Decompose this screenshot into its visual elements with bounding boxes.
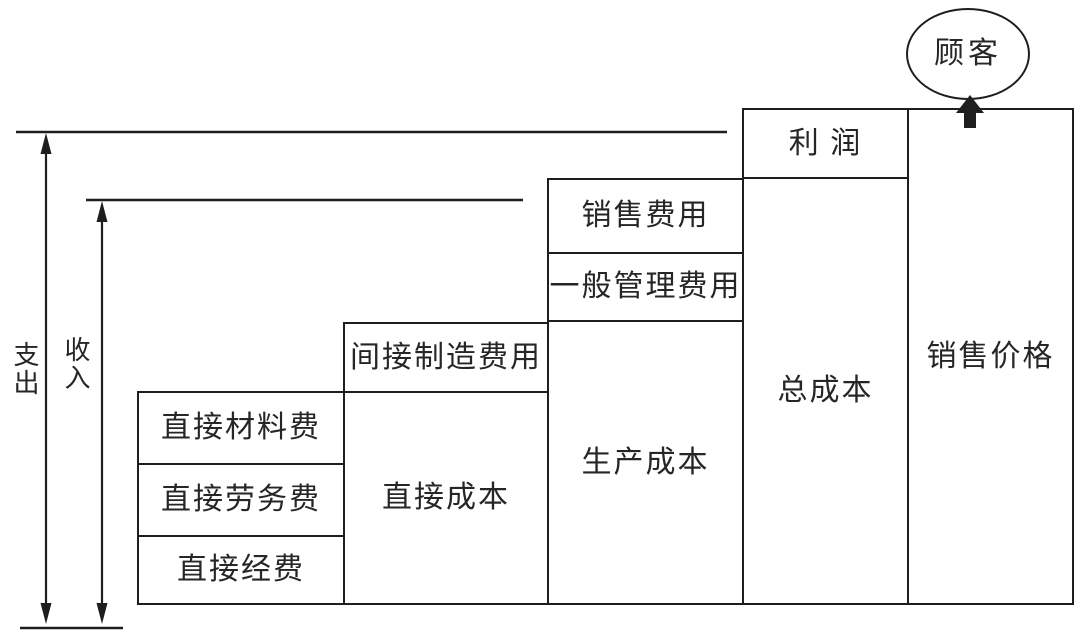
box-profit: 利 润 bbox=[742, 108, 909, 179]
expenditure-range-arrow bbox=[41, 133, 52, 624]
box-direct-expense-label: 直接经费 bbox=[177, 555, 305, 585]
box-general-admin-expense: 一般管理费用 bbox=[547, 252, 744, 322]
box-direct-material: 直接材料费 bbox=[137, 391, 345, 465]
box-selling-expense: 销售费用 bbox=[547, 178, 744, 254]
box-production-cost: 生产成本 bbox=[547, 320, 744, 605]
box-general-admin-expense-label: 一般管理费用 bbox=[550, 272, 742, 302]
box-direct-material-label: 直接材料费 bbox=[161, 413, 321, 443]
box-total-cost: 总成本 bbox=[742, 177, 909, 605]
expenditure-label: 支出 bbox=[11, 341, 37, 397]
box-indirect-manufacturing: 间接制造费用 bbox=[343, 322, 549, 393]
box-direct-labor-label: 直接劳务费 bbox=[161, 485, 321, 515]
box-indirect-manufacturing-label: 间接制造费用 bbox=[350, 343, 542, 373]
income-range-arrow bbox=[97, 201, 108, 624]
customer-label: 顾客 bbox=[934, 39, 1002, 69]
box-total-cost-label: 总成本 bbox=[778, 376, 874, 406]
box-selling-price-label: 销售价格 bbox=[927, 342, 1055, 372]
income-label: 收入 bbox=[62, 336, 88, 392]
box-production-cost-label: 生产成本 bbox=[582, 448, 710, 478]
cost-structure-diagram: 支出 收入 直接材料费 直接劳务费 直接经费 间接制造费用 直接成本 销售费用 … bbox=[0, 0, 1080, 637]
box-selling-expense-label: 销售费用 bbox=[582, 201, 710, 231]
box-profit-label: 利 润 bbox=[789, 129, 863, 159]
box-direct-cost: 直接成本 bbox=[343, 391, 549, 605]
box-direct-cost-label: 直接成本 bbox=[382, 483, 510, 513]
box-direct-expense: 直接经费 bbox=[137, 535, 345, 605]
box-selling-price: 销售价格 bbox=[907, 108, 1074, 605]
customer-node: 顾客 bbox=[906, 8, 1030, 100]
box-direct-labor: 直接劳务费 bbox=[137, 463, 345, 537]
